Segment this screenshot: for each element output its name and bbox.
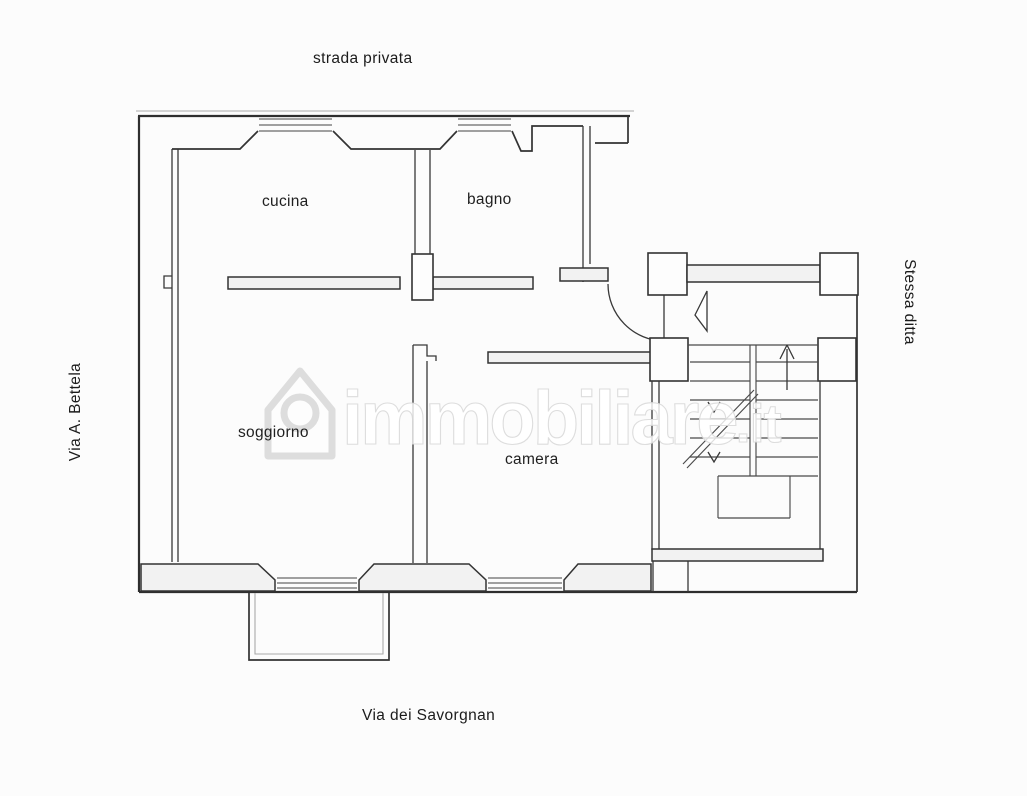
camera-top-wall	[488, 352, 652, 363]
street-label-left: Via A. Bettela	[67, 363, 84, 461]
bagno-right-wall	[583, 126, 590, 282]
cucina-top-wall	[172, 131, 457, 149]
stairwell-bottom-wall	[652, 549, 823, 561]
cucina-bagno-divider	[415, 150, 430, 254]
street-label-top: strada privata	[313, 50, 413, 67]
bottom-wall	[141, 564, 651, 591]
floorplan-drawing: immobiliare.it strada privata cucina bag…	[0, 0, 1027, 796]
direction-marker-icon	[695, 291, 707, 331]
floorplan-page: immobiliare.it strada privata cucina bag…	[0, 0, 1027, 796]
top-wall-recess	[512, 126, 583, 151]
entry-wall-stub	[560, 268, 608, 281]
landing-pillar-right	[820, 253, 858, 295]
side-label-right: Stessa ditta	[901, 259, 918, 345]
watermark-house-icon	[268, 371, 332, 456]
apartment-left-wall	[164, 149, 178, 562]
room-label-cucina: cucina	[262, 193, 309, 210]
landing-pillar-left	[648, 253, 687, 295]
center-pillar	[412, 254, 433, 300]
watermark: immobiliare.it	[268, 371, 782, 461]
camera-window	[488, 578, 562, 588]
bagno-window	[458, 119, 511, 131]
stair-pillar-right	[818, 338, 856, 381]
room-label-camera: camera	[505, 451, 559, 468]
bagno-bottom-wall	[433, 277, 533, 289]
stair-arrow-up-icon	[780, 345, 794, 390]
street-label-bottom: Via dei Savorgnan	[362, 707, 495, 724]
balcony-door-window	[277, 578, 357, 588]
balcony	[249, 593, 389, 660]
room-label-soggiorno: soggiorno	[238, 424, 309, 441]
landing-parapet	[687, 265, 820, 282]
stair-pillar-left	[650, 338, 688, 381]
cucina-window	[259, 119, 332, 131]
watermark-text: immobiliare.it	[342, 376, 782, 461]
room-label-bagno: bagno	[467, 191, 512, 208]
cucina-soggiorno-wall	[228, 277, 400, 289]
